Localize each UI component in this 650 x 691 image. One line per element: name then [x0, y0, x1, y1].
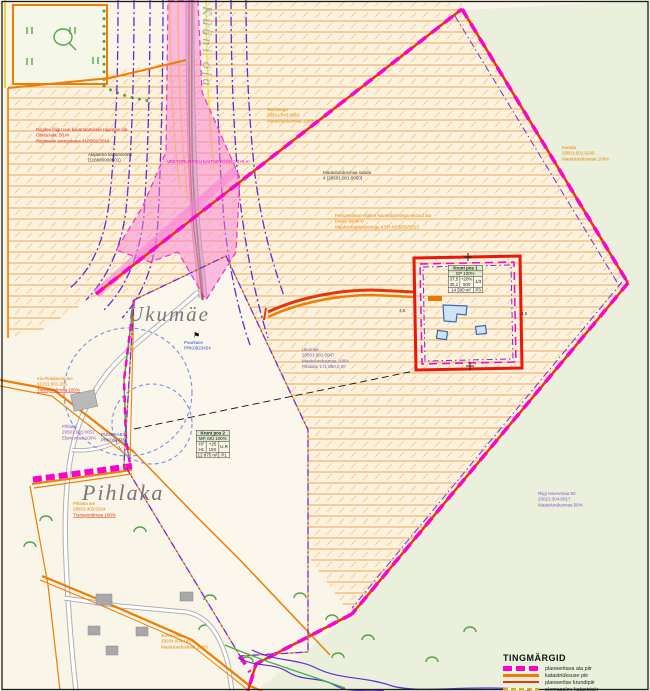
dimension-label-right: 4,5 — [521, 311, 527, 317]
annotation-reserve: Riigi reservmaa 50 20021:304:0017 Maatul… — [538, 491, 583, 508]
annotation-center: Maatulundusmaa saada 4 (29501:001:0050) — [323, 170, 371, 181]
legend-item-planned-area: planeeritava ala piir — [503, 665, 648, 671]
legend-item-existing-boundary: olemasolev katastripiir — [503, 686, 648, 691]
legend-swatch-cadastre-boundary — [503, 674, 539, 677]
map-canvas — [0, 0, 650, 691]
annotation-pipe: VEETORUSTIKU KAITSEVÖÖND 2×5 m — [167, 159, 250, 165]
annotation-pihlaka-parcel: Pihlaka 29501:001:0051 Elamumaa 100% — [62, 424, 96, 441]
annotation-pihlaka-tee: Pihlaka tee 29501:403:0104 Transpordimaa… — [73, 501, 116, 518]
dimension-label-left: 4,5 — [399, 308, 405, 314]
annotation-restriction: Riigitee lõigu uue kavandamisele rajamis… — [36, 127, 127, 144]
site-table-pos1: Krunt pos 1 EP 100% 37,535,1 +20%500 1/3… — [448, 265, 483, 293]
annotation-tammeoja: Tammeoja 28501:043:0063 Maatulundusmaa 1… — [267, 107, 314, 124]
annotation-ukumae-parcel: Ukumäe 29501:001:0047 Maatulundusmaa 100… — [302, 347, 349, 370]
legend-swatch-existing-boundary — [503, 688, 539, 690]
legend-swatch-planned-area-boundary — [503, 666, 539, 671]
place-label-ukumae: Ukumäe — [128, 302, 210, 327]
terrain-regions — [0, 0, 650, 691]
well-icon: ⚑ — [193, 331, 200, 340]
annotation-corridor: Perspektiivse riigitee kavandamisega seo… — [335, 213, 431, 230]
legend: TINGMÄRGID planeeritava ala piir katastr… — [503, 653, 648, 691]
legend-item-cadastre: katastriüksuse piir — [503, 672, 648, 678]
annotation-well: Puurkaev PRK0023454 — [184, 340, 211, 351]
stream-label: Küüni oja — [198, 6, 214, 89]
site-table-pos2: Krunt pos 2 MP, MÜ 100% H7H1 +2515X U.R … — [196, 430, 229, 458]
annotation-puurkaev: PUURKAEV PRK0012451 — [101, 432, 128, 443]
annotation-road: Kiu-Rutalause tee 31201:001:205 Transpor… — [37, 376, 80, 393]
legend-item-planned-plot: planeeritav krundipiir — [503, 679, 648, 685]
annotation-kanala: Kanala 29501:001:0245 Maatulundusmaa 100… — [562, 145, 609, 162]
annotation-substation: Alajaama kaitsevöönd (118800000001) — [88, 152, 132, 163]
legend-swatch-planned-plot-boundary — [503, 681, 539, 684]
annotation-jurtle: Jürtle-Niitu 29204:004:1414 Maatulundusm… — [161, 633, 208, 650]
legend-title: TINGMÄRGID — [503, 653, 648, 663]
map-sheet: Ukumäe Pihlaka Küüni oja Riigitee lõigu … — [0, 0, 650, 691]
